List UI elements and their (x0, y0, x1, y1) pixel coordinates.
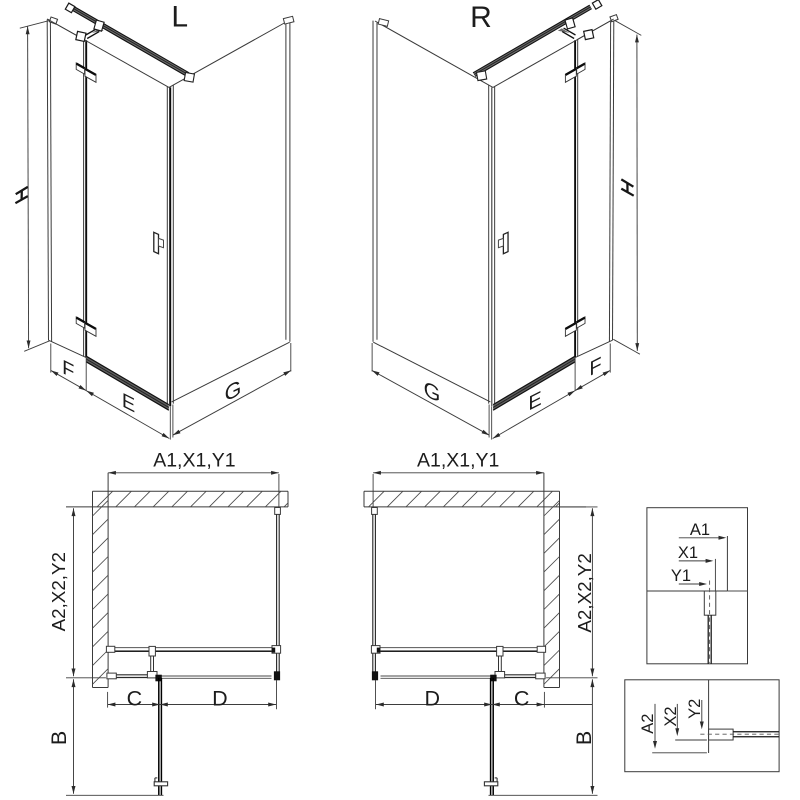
svg-text:A2,X2,Y2: A2,X2,Y2 (574, 553, 595, 632)
svg-text:X1: X1 (678, 544, 698, 562)
svg-text:R: R (470, 1, 492, 34)
svg-text:Y2: Y2 (686, 699, 704, 719)
svg-text:A1,X1,Y1: A1,X1,Y1 (417, 449, 499, 471)
svg-text:A2,X2,Y2: A2,X2,Y2 (48, 552, 69, 631)
svg-text:A1: A1 (690, 521, 710, 539)
svg-text:B: B (572, 731, 596, 745)
svg-text:Y1: Y1 (671, 567, 691, 585)
svg-text:B: B (47, 731, 71, 745)
svg-text:A1,X1,Y1: A1,X1,Y1 (153, 449, 235, 471)
svg-text:C: C (514, 686, 530, 710)
svg-text:D: D (212, 686, 228, 710)
svg-text:L: L (171, 1, 188, 34)
svg-text:A2: A2 (639, 714, 657, 734)
svg-text:X2: X2 (662, 706, 680, 726)
svg-text:D: D (425, 686, 441, 710)
svg-text:C: C (127, 686, 143, 710)
